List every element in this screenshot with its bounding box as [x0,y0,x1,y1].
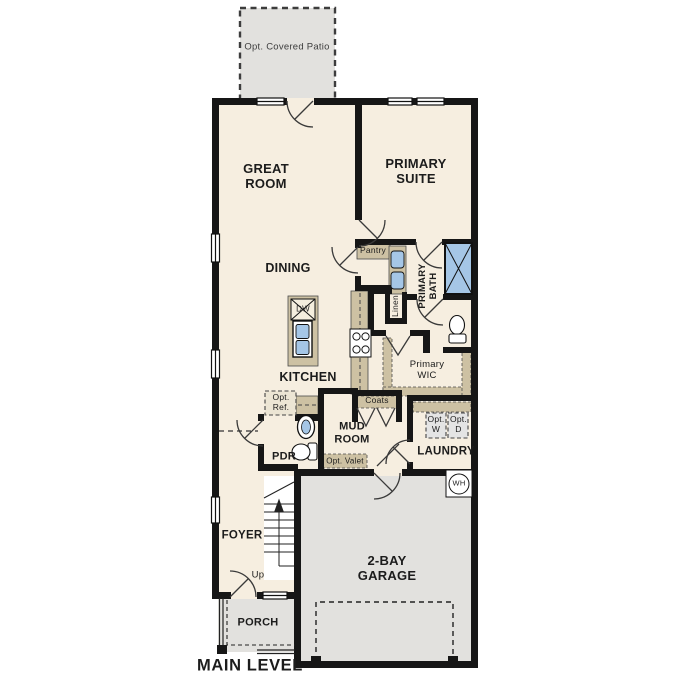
wall-garage-left [294,469,301,668]
plan-title: MAIN LEVEL [197,656,303,675]
label-porch: PORCH [238,617,279,630]
label-foyer: FOYER [222,529,263,542]
patio-area [240,8,335,101]
wall-laundry-top [410,395,472,401]
porch-post [217,645,227,654]
label-water-heater: WH [453,480,466,489]
window-left-2 [212,350,220,378]
wall-right [471,98,478,668]
label-garage: 2-BAY GARAGE [352,553,422,583]
label-primary-wic: Primary WIC [404,359,450,381]
window-suite-top-2 [417,98,444,105]
label-opt-washer: Opt. W [425,415,447,435]
wall-mudroom-left [318,388,324,471]
window-front [263,592,287,599]
label-pdr: PDR [272,451,296,464]
laundry-shelf [413,402,471,412]
wall-coats-right [396,390,402,422]
label-stairs-up: Up [252,569,265,580]
staircase [264,476,294,580]
wall-wic-top-b [410,330,424,336]
label-laundry: LAUNDRY [417,445,475,458]
wall-toilet-bottom [443,347,472,353]
wic-shelf-left [383,338,392,390]
floor-plan-drawing [0,0,687,687]
label-coats: Coats [365,396,388,406]
wic-shelf-right [462,349,471,396]
wall-linen-bottom [385,318,407,324]
wall-bath-mid-a [407,294,417,300]
wall-foyer-top [258,464,298,471]
window-greatroom-top [257,98,284,105]
wall-pdr-left-stub [258,414,264,421]
window-foyer-left [212,497,220,523]
label-opt-dryer: Opt. D [448,415,470,435]
label-dishwasher: DW [296,304,310,313]
label-primary-suite: PRIMARY SUITE [380,156,452,186]
label-pantry: Pantry [360,246,386,256]
window-left-1 [212,234,220,262]
label-kitchen: KITCHEN [279,370,336,385]
pdr-sink [298,416,315,439]
shower [445,243,472,294]
wall-laundry-left [407,395,413,442]
label-opt-valet: Opt. Valet [326,456,363,465]
wall-coats-left [352,390,358,422]
label-patio: Opt. Covered Patio [244,41,329,52]
primary-toilet [449,316,466,344]
label-primary-bath: PRIMARY BATH [417,257,439,315]
label-opt-ref: Opt. Ref. [268,393,294,413]
label-great-room: GREAT ROOM [235,161,297,191]
label-mud-room: MUD ROOM [329,420,375,446]
stove [350,329,371,357]
wall-greatroom-suite [355,105,362,220]
wall-wic-corner [423,330,430,353]
island-sink [293,321,312,357]
label-dining: DINING [265,261,310,276]
label-linen: Linen [391,295,401,317]
floor-plan: Opt. Covered Patio GREAT ROOM PRIMARY SU… [0,0,687,687]
window-suite-top-1 [388,98,412,105]
